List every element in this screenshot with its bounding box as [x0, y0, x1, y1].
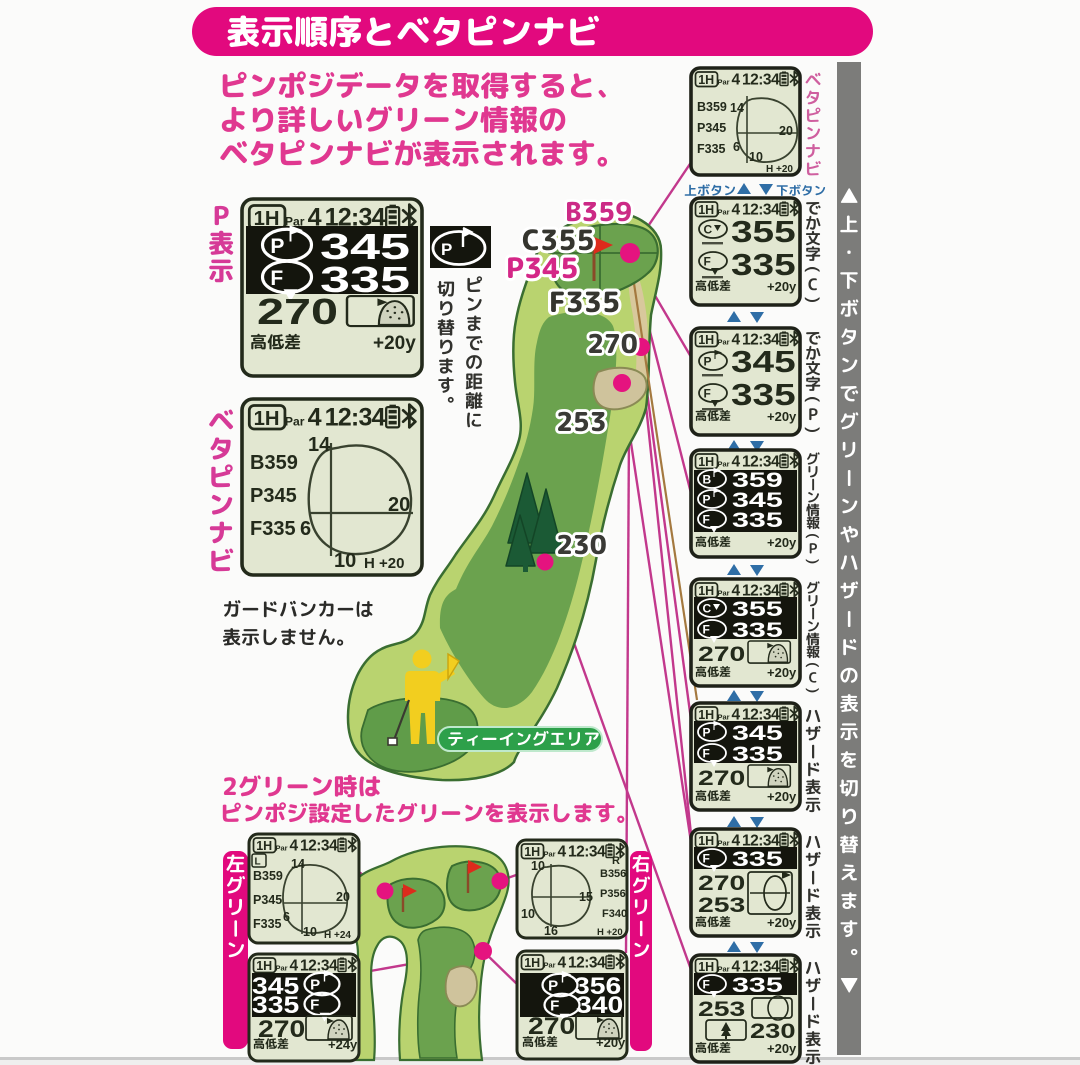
svg-text:B359: B359: [253, 869, 283, 883]
svg-text:6: 6: [283, 910, 290, 924]
svg-text:B359: B359: [697, 100, 727, 114]
svg-text:F340: F340: [602, 908, 627, 920]
svg-text:230: 230: [750, 1020, 796, 1043]
svg-text:F335: F335: [250, 518, 296, 540]
svg-text:6: 6: [300, 518, 311, 540]
svg-text:P345: P345: [697, 121, 726, 135]
svg-text:16: 16: [544, 924, 558, 938]
svg-text:+20y: +20y: [373, 333, 416, 354]
svg-text:270: 270: [257, 292, 338, 332]
svg-text:345: 345: [731, 345, 796, 379]
svg-text:270: 270: [698, 871, 745, 895]
svg-text:F335: F335: [253, 917, 282, 931]
svg-text:P: P: [441, 240, 452, 259]
svg-text:14: 14: [291, 857, 305, 871]
svg-text:335: 335: [732, 508, 783, 532]
svg-text:P345: P345: [253, 893, 282, 907]
svg-text:335: 335: [732, 847, 783, 871]
svg-text:R: R: [612, 855, 620, 867]
svg-text:10: 10: [303, 925, 317, 939]
svg-text:335: 335: [732, 742, 783, 766]
svg-text:+20y: +20y: [767, 1041, 797, 1056]
svg-text:+24y: +24y: [328, 1037, 358, 1052]
svg-text:335: 335: [732, 618, 783, 642]
svg-text:14: 14: [308, 434, 331, 456]
svg-text:+20y: +20y: [767, 279, 797, 294]
svg-text:355: 355: [731, 215, 796, 249]
svg-text:20: 20: [336, 890, 350, 904]
svg-text:10: 10: [521, 907, 535, 921]
svg-text:H +20: H +20: [597, 927, 623, 938]
svg-text:H +20: H +20: [364, 555, 404, 572]
svg-text:253: 253: [698, 893, 745, 917]
svg-text:335: 335: [731, 248, 796, 282]
svg-text:20: 20: [779, 124, 793, 138]
svg-text:F335: F335: [697, 142, 726, 156]
svg-text:6: 6: [733, 140, 740, 154]
svg-text:10: 10: [531, 859, 545, 873]
svg-text:H +20: H +20: [766, 164, 793, 175]
svg-text:335: 335: [732, 973, 783, 997]
svg-text:L: L: [255, 857, 261, 868]
svg-text:+20y: +20y: [767, 789, 797, 804]
svg-text:+20y: +20y: [767, 535, 797, 550]
svg-text:+20y: +20y: [596, 1035, 626, 1050]
svg-text:10: 10: [749, 150, 763, 164]
svg-text:14: 14: [730, 101, 744, 115]
svg-text:+20y: +20y: [767, 915, 797, 930]
svg-text:270: 270: [528, 1012, 575, 1039]
svg-text:+20y: +20y: [767, 665, 797, 680]
svg-text:270: 270: [698, 642, 745, 666]
svg-text:+20y: +20y: [767, 409, 797, 424]
svg-text:15: 15: [579, 890, 593, 904]
svg-text:B359: B359: [250, 452, 298, 474]
svg-text:253: 253: [698, 997, 745, 1021]
svg-text:H +24: H +24: [324, 930, 351, 941]
svg-text:270: 270: [698, 766, 745, 790]
svg-text:270: 270: [258, 1015, 305, 1042]
svg-text:335: 335: [731, 378, 796, 412]
svg-text:P345: P345: [250, 485, 297, 507]
svg-text:20: 20: [388, 494, 410, 516]
svg-text:P356: P356: [600, 888, 626, 900]
svg-text:B356: B356: [600, 868, 626, 880]
svg-text:10: 10: [334, 550, 356, 572]
